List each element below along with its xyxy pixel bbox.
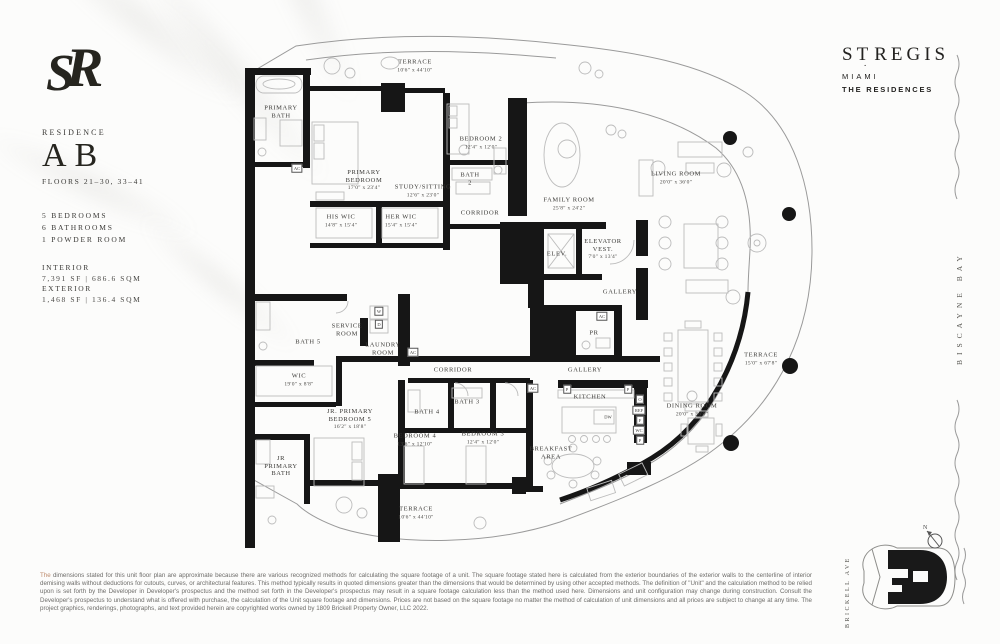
disclaimer-lead: The [40,572,51,579]
floor-plan: N [0,0,1000,644]
disclaimer: The dimensions stated for this unit floo… [40,572,812,613]
bay-label: BISCAYNE BAY [955,228,964,388]
site-key-plan: N [863,525,966,609]
page: S R ✦ RESIDENCE AB FLOORS 21–30, 33–41 5… [0,0,1000,644]
compass-icon [927,531,942,548]
disclaimer-text: dimensions stated for this unit floor pl… [40,572,812,612]
street-label: BRICKELL AVE [845,550,851,628]
compass-n-label: N [923,525,928,531]
